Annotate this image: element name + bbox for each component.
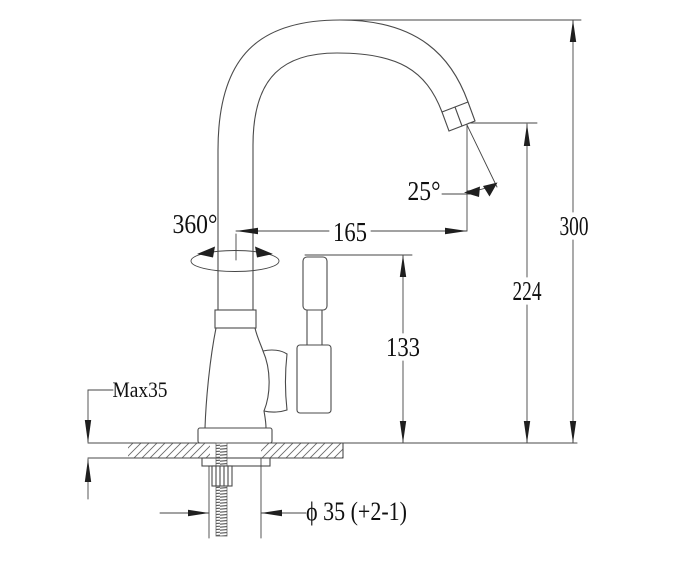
handle-grip: [303, 257, 327, 310]
mounting-nut: [212, 466, 232, 486]
dim-label-reach: 165: [333, 217, 367, 247]
counter-deck: [88, 443, 577, 458]
rotation-arrow-left-icon: [197, 247, 215, 258]
counter-hatch-right: [261, 444, 343, 459]
spout-tip: [442, 102, 475, 131]
valve-body: [205, 310, 287, 428]
dim-label-spout-angle: 25°: [408, 176, 441, 206]
faucet-body: [191, 20, 475, 536]
dim-label-hole-diameter: ϕ 35 (+2-1): [306, 497, 407, 526]
dim-label-spout-height: 224: [513, 276, 542, 306]
base-flange: [198, 428, 272, 443]
handle: [297, 257, 331, 413]
rotation-arrow-right-icon: [255, 247, 273, 258]
dim-label-swivel: 360°: [173, 209, 218, 239]
counter-hatch-left: [128, 444, 210, 459]
dim-label-overall-height: 300: [560, 211, 589, 241]
pipe-collar: [215, 310, 256, 328]
dimension-spout-angle: 25°: [408, 125, 498, 231]
mounting-hardware: [202, 443, 270, 536]
mounting-washer: [202, 458, 270, 466]
dim-label-handle-height: 133: [386, 332, 420, 362]
faucet-technical-drawing: 300 224 133 165 25° 360°: [0, 0, 695, 579]
handle-stem: [307, 310, 322, 345]
gooseneck-spout: [218, 20, 475, 310]
dimension-hole-diameter: ϕ 35 (+2-1): [160, 458, 407, 538]
dimension-max-thickness: Max35: [85, 377, 168, 499]
threaded-stud: [216, 443, 227, 536]
dimension-spout-height: 224: [469, 123, 542, 443]
dim-label-max-thickness: Max35: [113, 377, 168, 402]
dimension-overall-height: 300: [340, 20, 589, 443]
drawing-canvas: 300 224 133 165 25° 360°: [0, 0, 695, 579]
handle-cartridge: [297, 345, 331, 413]
